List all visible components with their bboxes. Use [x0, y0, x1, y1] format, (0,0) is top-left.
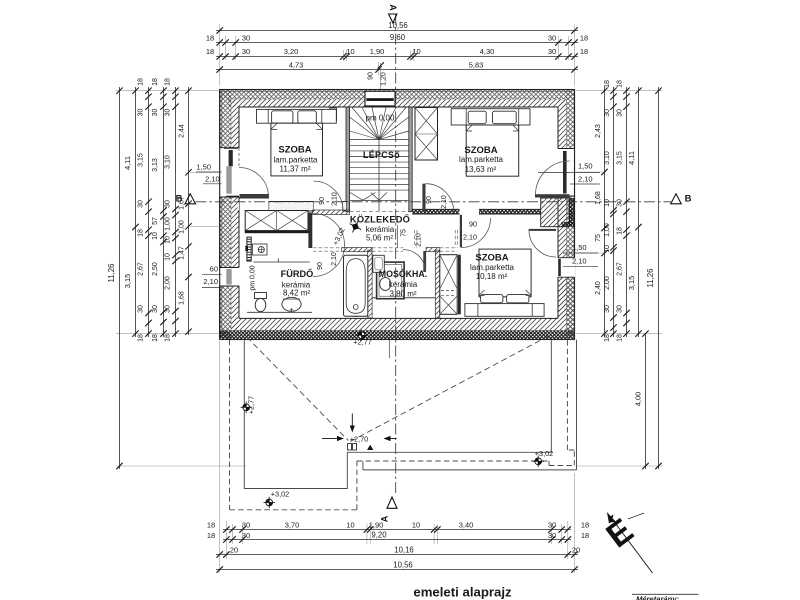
svg-text:90: 90 [368, 72, 375, 80]
svg-text:2,00: 2,00 [604, 276, 611, 290]
svg-text:18: 18 [581, 521, 589, 530]
svg-text:18: 18 [138, 334, 145, 342]
svg-text:90: 90 [319, 197, 326, 205]
svg-text:11,26: 11,26 [107, 264, 116, 283]
svg-text:10,18 m²: 10,18 m² [476, 272, 508, 281]
svg-text:2,10: 2,10 [463, 233, 477, 242]
svg-text:2,10: 2,10 [203, 277, 218, 286]
svg-text:20: 20 [230, 546, 238, 555]
svg-text:+2,77: +2,77 [247, 396, 256, 414]
svg-text:2,10: 2,10 [331, 252, 338, 266]
svg-text:Méretarány:: Méretarány: [636, 595, 680, 600]
svg-text:57: 57 [152, 217, 159, 225]
svg-text:FÜRDŐ: FÜRDŐ [281, 268, 314, 279]
svg-text:4,11: 4,11 [123, 156, 132, 170]
svg-text:1,68: 1,68 [595, 191, 602, 205]
svg-text:18: 18 [206, 34, 214, 43]
svg-text:10,56: 10,56 [388, 21, 408, 30]
svg-text:1,47: 1,47 [179, 246, 186, 260]
svg-text:18: 18 [165, 78, 172, 86]
svg-text:30: 30 [548, 47, 556, 56]
svg-text:2,10: 2,10 [205, 175, 220, 184]
svg-text:18: 18 [152, 78, 159, 86]
svg-text:18: 18 [207, 531, 215, 540]
svg-text:KÖZLEKEDŐ: KÖZLEKEDŐ [350, 214, 410, 225]
svg-text:2,10: 2,10 [578, 174, 593, 183]
svg-text:18: 18 [604, 80, 611, 88]
svg-text:1,50: 1,50 [572, 243, 587, 252]
svg-text:+3,02: +3,02 [271, 490, 289, 499]
svg-text:18: 18 [165, 334, 172, 342]
svg-text:18: 18 [580, 47, 588, 56]
svg-text:30: 30 [548, 521, 556, 530]
svg-text:2,50: 2,50 [152, 262, 159, 276]
svg-text:lam.parketta: lam.parketta [459, 155, 504, 164]
svg-text:30: 30 [617, 109, 624, 117]
svg-text:75: 75 [595, 234, 602, 242]
svg-text:+2,70: +2,70 [350, 435, 368, 444]
svg-text:3,70: 3,70 [285, 521, 300, 530]
svg-text:18: 18 [617, 80, 624, 88]
svg-text:1,68: 1,68 [179, 291, 186, 305]
svg-text:10: 10 [604, 199, 611, 207]
svg-text:1,50: 1,50 [196, 163, 211, 172]
svg-text:3,15: 3,15 [627, 276, 636, 291]
svg-text:30: 30 [604, 305, 611, 313]
svg-text:SZOBA: SZOBA [278, 145, 311, 156]
svg-text:18: 18 [604, 334, 611, 342]
svg-text:3,10: 3,10 [165, 155, 172, 169]
svg-text:30: 30 [138, 109, 145, 117]
svg-text:18: 18 [617, 334, 624, 342]
svg-text:2,40: 2,40 [595, 281, 602, 295]
svg-text:30: 30 [165, 109, 172, 117]
svg-text:4,30: 4,30 [480, 47, 495, 56]
svg-text:SZOBA: SZOBA [475, 252, 508, 263]
svg-text:1,20: 1,20 [381, 72, 388, 86]
svg-text:lam.parketta: lam.parketta [470, 263, 515, 272]
svg-text:10: 10 [152, 232, 159, 240]
svg-text:5,83: 5,83 [469, 61, 484, 70]
svg-text:3,80 m²: 3,80 m² [389, 289, 416, 298]
svg-text:2,67: 2,67 [617, 262, 624, 276]
svg-text:90: 90 [426, 196, 433, 204]
svg-text:2,10: 2,10 [572, 256, 587, 265]
svg-text:1,00: 1,00 [604, 223, 611, 237]
svg-text:30: 30 [242, 531, 250, 540]
svg-text:1,00: 1,00 [179, 220, 186, 234]
svg-text:13,63 m²: 13,63 m² [465, 165, 497, 174]
svg-text:18: 18 [581, 531, 589, 540]
svg-text:3,10: 3,10 [604, 151, 611, 165]
svg-text:90: 90 [317, 262, 324, 270]
svg-text:30: 30 [617, 305, 624, 313]
svg-text:B: B [176, 194, 183, 205]
svg-text:10: 10 [412, 521, 420, 530]
svg-text:10: 10 [165, 236, 172, 244]
svg-text:30: 30 [242, 47, 250, 56]
svg-text:1,00: 1,00 [165, 217, 172, 231]
svg-text:30: 30 [604, 109, 611, 117]
svg-text:lam.parketta: lam.parketta [273, 155, 318, 164]
svg-text:LÉPCSő: LÉPCSő [363, 150, 400, 160]
svg-text:18: 18 [617, 227, 624, 235]
svg-text:10,16: 10,16 [394, 546, 414, 555]
svg-text:10: 10 [346, 521, 354, 530]
svg-text:20: 20 [572, 546, 580, 555]
svg-text:18: 18 [207, 521, 215, 530]
svg-text:30: 30 [548, 34, 556, 43]
svg-text:2,00: 2,00 [165, 276, 172, 290]
svg-text:3,15: 3,15 [123, 274, 132, 289]
svg-text:10,56: 10,56 [393, 561, 413, 570]
svg-text:1,50: 1,50 [578, 161, 593, 170]
svg-text:4,00: 4,00 [634, 392, 643, 407]
svg-text:18: 18 [580, 34, 588, 43]
svg-text:9,60: 9,60 [390, 33, 406, 42]
svg-text:30: 30 [548, 531, 556, 540]
svg-text:3,15: 3,15 [617, 151, 624, 165]
svg-text:3,15: 3,15 [138, 153, 145, 167]
svg-text:30: 30 [242, 521, 250, 530]
svg-text:60: 60 [210, 265, 218, 274]
svg-text:10: 10 [346, 47, 354, 56]
svg-text:5,06 m²: 5,06 m² [366, 234, 393, 243]
svg-text:2,67: 2,67 [138, 262, 145, 276]
svg-text:75: 75 [401, 229, 408, 237]
svg-text:4,11: 4,11 [627, 151, 636, 165]
svg-text:10: 10 [604, 245, 611, 253]
svg-text:+2,77: +2,77 [353, 337, 371, 346]
svg-text:4,73: 4,73 [289, 61, 304, 70]
svg-text:A: A [380, 515, 390, 522]
svg-text:18: 18 [152, 334, 159, 342]
svg-text:3,40: 3,40 [459, 521, 474, 530]
svg-text:30: 30 [152, 305, 159, 313]
svg-text:10: 10 [165, 253, 172, 261]
svg-text:3,13: 3,13 [152, 158, 159, 172]
svg-text:A: A [388, 4, 398, 11]
svg-text:9,20: 9,20 [371, 531, 387, 540]
svg-text:30: 30 [138, 200, 145, 208]
svg-text:30: 30 [617, 199, 624, 207]
svg-text:pm 0,00: pm 0,00 [366, 114, 395, 123]
svg-text:30: 30 [165, 200, 172, 208]
svg-text:11,37 m²: 11,37 m² [280, 164, 311, 173]
svg-text:2,10: 2,10 [416, 233, 423, 247]
svg-text:B: B [685, 194, 692, 205]
svg-text:30: 30 [138, 305, 145, 313]
svg-text:emeleti alaprajz: emeleti alaprajz [413, 585, 512, 600]
svg-text:18: 18 [138, 78, 145, 86]
svg-text:90: 90 [469, 220, 477, 229]
svg-text:2,10: 2,10 [332, 192, 339, 206]
svg-text:MOSÓKHA.: MOSÓKHA. [379, 268, 427, 279]
svg-text:11,26: 11,26 [646, 269, 655, 288]
svg-text:30: 30 [152, 109, 159, 117]
svg-text:kerámia: kerámia [389, 280, 418, 289]
svg-text:18: 18 [206, 47, 214, 56]
svg-text:10: 10 [412, 47, 420, 56]
svg-text:2,44: 2,44 [179, 124, 186, 138]
svg-text:30: 30 [165, 305, 172, 313]
svg-text:2,43: 2,43 [595, 124, 602, 138]
svg-text:18: 18 [138, 229, 145, 237]
svg-text:+3,02: +3,02 [535, 449, 553, 458]
svg-text:pm 0,00: pm 0,00 [250, 265, 257, 290]
svg-text:3,20: 3,20 [284, 47, 299, 56]
svg-text:30: 30 [242, 34, 250, 43]
svg-text:1,90: 1,90 [370, 47, 385, 56]
svg-text:8,42 m²: 8,42 m² [283, 289, 310, 298]
